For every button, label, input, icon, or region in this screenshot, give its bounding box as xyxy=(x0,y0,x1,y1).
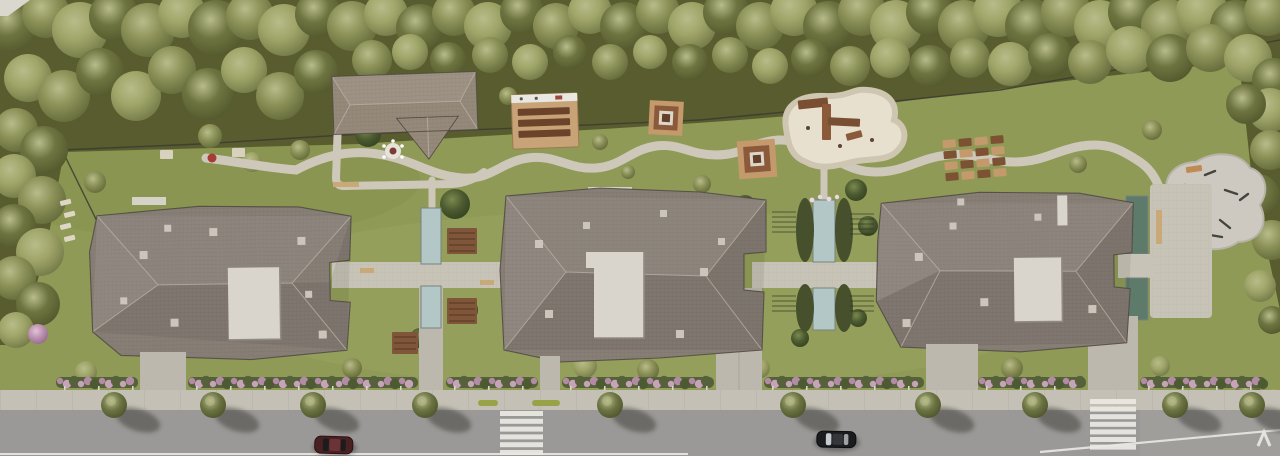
water-channel-1-south xyxy=(421,286,441,328)
hedge-flower xyxy=(912,381,918,387)
picnic-table xyxy=(160,150,173,159)
car-rear-window xyxy=(844,434,849,445)
playground xyxy=(785,90,904,167)
pergola xyxy=(447,228,477,254)
green-strip xyxy=(478,400,498,406)
hedge-flower xyxy=(501,376,511,386)
play-detail xyxy=(870,138,874,142)
street-tree-highlight xyxy=(205,396,215,406)
hedge-flower xyxy=(1075,376,1085,386)
garden-box xyxy=(991,146,1005,155)
hedge-flower xyxy=(336,381,342,387)
building-3-chimney xyxy=(1057,195,1067,225)
forest-tree xyxy=(621,165,635,179)
hedge-flower xyxy=(765,378,771,384)
hedge-flower xyxy=(849,378,855,384)
hedge-flower xyxy=(1033,376,1043,386)
zebra-stripe xyxy=(500,427,543,432)
play-detail xyxy=(838,144,842,148)
hedge-flower xyxy=(447,378,453,384)
hedge-flower xyxy=(285,376,295,386)
zebra-stripe xyxy=(500,442,543,447)
garden-box xyxy=(961,171,975,180)
hedge-flower xyxy=(979,378,985,384)
forest-tree xyxy=(1150,356,1170,376)
hedge-flower xyxy=(891,378,897,384)
hedge-flower xyxy=(991,376,1001,386)
hedge-flower xyxy=(786,381,792,387)
street-tree-highlight xyxy=(602,396,612,406)
hedge-flower xyxy=(1021,378,1027,384)
forest-tree xyxy=(392,34,428,70)
pavilion-center xyxy=(662,114,670,122)
building-3 xyxy=(875,191,1135,354)
deck-item xyxy=(555,95,562,99)
forest-tree xyxy=(1244,270,1276,302)
garden-box xyxy=(977,169,991,178)
hedge-flower xyxy=(489,378,495,384)
zebra-stripe xyxy=(1090,437,1136,442)
hedge-flower xyxy=(390,379,400,389)
hedge-flower xyxy=(399,378,405,384)
building-2-terrace xyxy=(586,252,644,338)
forest-tree xyxy=(1028,33,1072,77)
forest-tree xyxy=(1146,34,1194,82)
hedge-flower xyxy=(369,376,379,386)
hedge-flower xyxy=(273,378,279,384)
forest-tree xyxy=(712,37,748,73)
garden-box xyxy=(975,147,989,156)
water-channel-2-north xyxy=(813,200,835,262)
garden-box xyxy=(959,149,973,158)
water-channel-1-north xyxy=(421,208,441,264)
garden-box xyxy=(993,168,1007,177)
aerial-render-canvas xyxy=(0,0,1280,456)
hedge-flower xyxy=(459,376,469,386)
hedge-flower xyxy=(680,379,690,389)
play-structure xyxy=(828,117,860,127)
hedge-flower xyxy=(468,381,474,387)
bench xyxy=(1156,210,1162,244)
garden-box xyxy=(942,139,956,148)
forest-tree xyxy=(1106,26,1154,74)
umbrella xyxy=(208,154,217,163)
car-windshield xyxy=(826,433,832,445)
flower-bush xyxy=(28,324,48,344)
forest-tree xyxy=(472,37,508,73)
garden-box xyxy=(960,160,974,169)
hedge-flower xyxy=(1195,376,1205,386)
zebra-stripe xyxy=(500,434,543,439)
building-1 xyxy=(89,204,353,362)
hedge-flower xyxy=(306,379,316,389)
hedge-flower xyxy=(510,381,516,387)
zebra-stripe xyxy=(500,419,543,424)
forest-tree xyxy=(870,38,910,78)
car-windshield xyxy=(323,438,329,451)
forest-tree xyxy=(830,46,870,86)
hedge-flower xyxy=(210,381,216,387)
hedge-flower xyxy=(575,376,585,386)
forest-tree xyxy=(950,38,990,78)
clubhouse-roof-facet xyxy=(332,72,477,106)
forest-tree xyxy=(1142,120,1162,140)
hedge-flower xyxy=(626,381,632,387)
hedge-flower xyxy=(111,376,121,386)
street-tree-highlight xyxy=(106,396,116,406)
sidewalk-joints xyxy=(0,390,1280,412)
hedge-flower xyxy=(69,376,79,386)
hedge-flower xyxy=(348,379,358,389)
pergola xyxy=(447,298,477,324)
street-tree-highlight xyxy=(1027,396,1037,406)
forest-tree xyxy=(909,45,951,87)
pavilion-2 xyxy=(737,139,778,180)
forest-tree xyxy=(342,358,362,378)
hedge-flower xyxy=(647,378,653,384)
bbq-deck xyxy=(511,93,579,149)
hedge-flower xyxy=(882,379,892,389)
picnic-table xyxy=(232,148,245,157)
pavilion-1 xyxy=(648,100,684,136)
forest-tree xyxy=(294,50,338,94)
street-tree-highlight xyxy=(1167,396,1177,406)
hedge-flower xyxy=(1000,381,1006,387)
zebra-stripe xyxy=(1090,407,1136,412)
garden-box xyxy=(958,138,972,147)
hedge-flower xyxy=(378,381,384,387)
site-plan-rendering xyxy=(0,0,1280,456)
garden-box xyxy=(990,135,1004,144)
forest-tree xyxy=(1001,357,1023,379)
hedge-flower xyxy=(189,378,195,384)
hedge-flower xyxy=(405,380,413,388)
hedge-flower xyxy=(1042,381,1048,387)
car-rear-window xyxy=(341,439,346,451)
hedge-flower xyxy=(327,376,337,386)
garden-box xyxy=(976,158,990,167)
hedge-flower xyxy=(807,378,813,384)
forest-tree xyxy=(592,44,628,80)
buildings xyxy=(89,188,1135,362)
roof-strip xyxy=(132,197,166,205)
building-2 xyxy=(500,188,766,362)
bench xyxy=(333,182,359,187)
pavilion-center xyxy=(753,155,762,164)
courtyard3-paving-joints xyxy=(1150,184,1212,318)
hedge-flower xyxy=(57,378,63,384)
water-channel-2-south xyxy=(813,288,835,330)
hedge-flower xyxy=(861,376,871,386)
hedge-flower xyxy=(605,378,611,384)
hedge-flower xyxy=(120,381,126,387)
forest-tree xyxy=(512,44,548,80)
zebra-stripe xyxy=(1090,429,1136,434)
lawn-tree xyxy=(845,179,867,201)
street-tree-highlight xyxy=(305,396,315,406)
hedge-flower xyxy=(777,376,787,386)
hedge-flower xyxy=(1237,376,1247,386)
hedge-flower xyxy=(1141,378,1147,384)
forest-tree xyxy=(592,134,608,150)
street-tree-highlight xyxy=(417,396,427,406)
hedge-flower xyxy=(126,377,134,385)
zebra-stripe xyxy=(500,411,543,416)
hedge-flower xyxy=(243,376,253,386)
hedge-flower xyxy=(78,381,84,387)
play-detail xyxy=(806,126,810,130)
hedge-flower xyxy=(252,381,258,387)
hedge-flower xyxy=(659,376,669,386)
street-tree-highlight xyxy=(920,396,930,406)
hedge-flower xyxy=(701,376,711,386)
hedge-flower xyxy=(1063,378,1069,384)
hedge-flower xyxy=(689,378,695,384)
garden-box xyxy=(992,157,1006,166)
hedge-flower xyxy=(201,376,211,386)
hedge-flower xyxy=(315,378,321,384)
building-3-terrace xyxy=(1014,257,1063,321)
table-center xyxy=(390,148,397,155)
hedge-flower xyxy=(617,376,627,386)
car-roof xyxy=(329,439,340,451)
forest-tree xyxy=(672,44,708,80)
building-1-terrace xyxy=(228,267,281,340)
car-maroon xyxy=(312,436,357,456)
forest-tree xyxy=(752,48,788,84)
driveway-building-2 xyxy=(540,356,560,394)
forest-tree xyxy=(988,42,1032,86)
forest-tree xyxy=(553,35,587,69)
hedge-flower xyxy=(563,378,569,384)
hedge-flower xyxy=(1225,378,1231,384)
street-tree-highlight xyxy=(785,396,795,406)
forest-tree xyxy=(1068,40,1112,84)
zebra-stripe xyxy=(1090,399,1136,404)
hedge-flower xyxy=(99,378,105,384)
forest-tree xyxy=(198,124,222,148)
forest-tree xyxy=(1226,84,1266,124)
forest-tree xyxy=(290,140,310,160)
forest-tree xyxy=(1069,155,1087,173)
hedge-flower xyxy=(1204,381,1210,387)
hedge-flower xyxy=(584,381,590,387)
street-tree-highlight xyxy=(1244,396,1254,406)
forest-tree xyxy=(84,171,106,193)
garden-box xyxy=(974,136,988,145)
bench xyxy=(480,280,494,285)
lawn-tree xyxy=(440,189,470,219)
forest-tree xyxy=(693,175,711,193)
zebra-stripe xyxy=(1090,414,1136,419)
driveway-building-3 xyxy=(926,344,978,394)
hedge-flower xyxy=(357,378,363,384)
hedge-flower xyxy=(828,381,834,387)
hedge-flower xyxy=(1258,379,1268,389)
garden-box xyxy=(945,172,959,181)
garden-box xyxy=(944,161,958,170)
driveway-building-1 xyxy=(140,352,186,394)
forest-tree xyxy=(633,35,667,69)
bench xyxy=(360,268,374,273)
hedge-flower xyxy=(231,378,237,384)
hedge-flower xyxy=(903,376,913,386)
garden-box xyxy=(943,150,957,159)
hedge-flower xyxy=(1183,378,1189,384)
hedge-flower xyxy=(1162,381,1168,387)
forest-tree xyxy=(791,39,829,77)
hedge-flower xyxy=(531,378,537,384)
green-strip xyxy=(532,400,560,406)
zebra-stripe xyxy=(1090,422,1136,427)
hedge-flower xyxy=(1153,376,1163,386)
hedge-flower xyxy=(819,376,829,386)
car-roof xyxy=(832,434,843,445)
forest-tree xyxy=(352,40,392,80)
